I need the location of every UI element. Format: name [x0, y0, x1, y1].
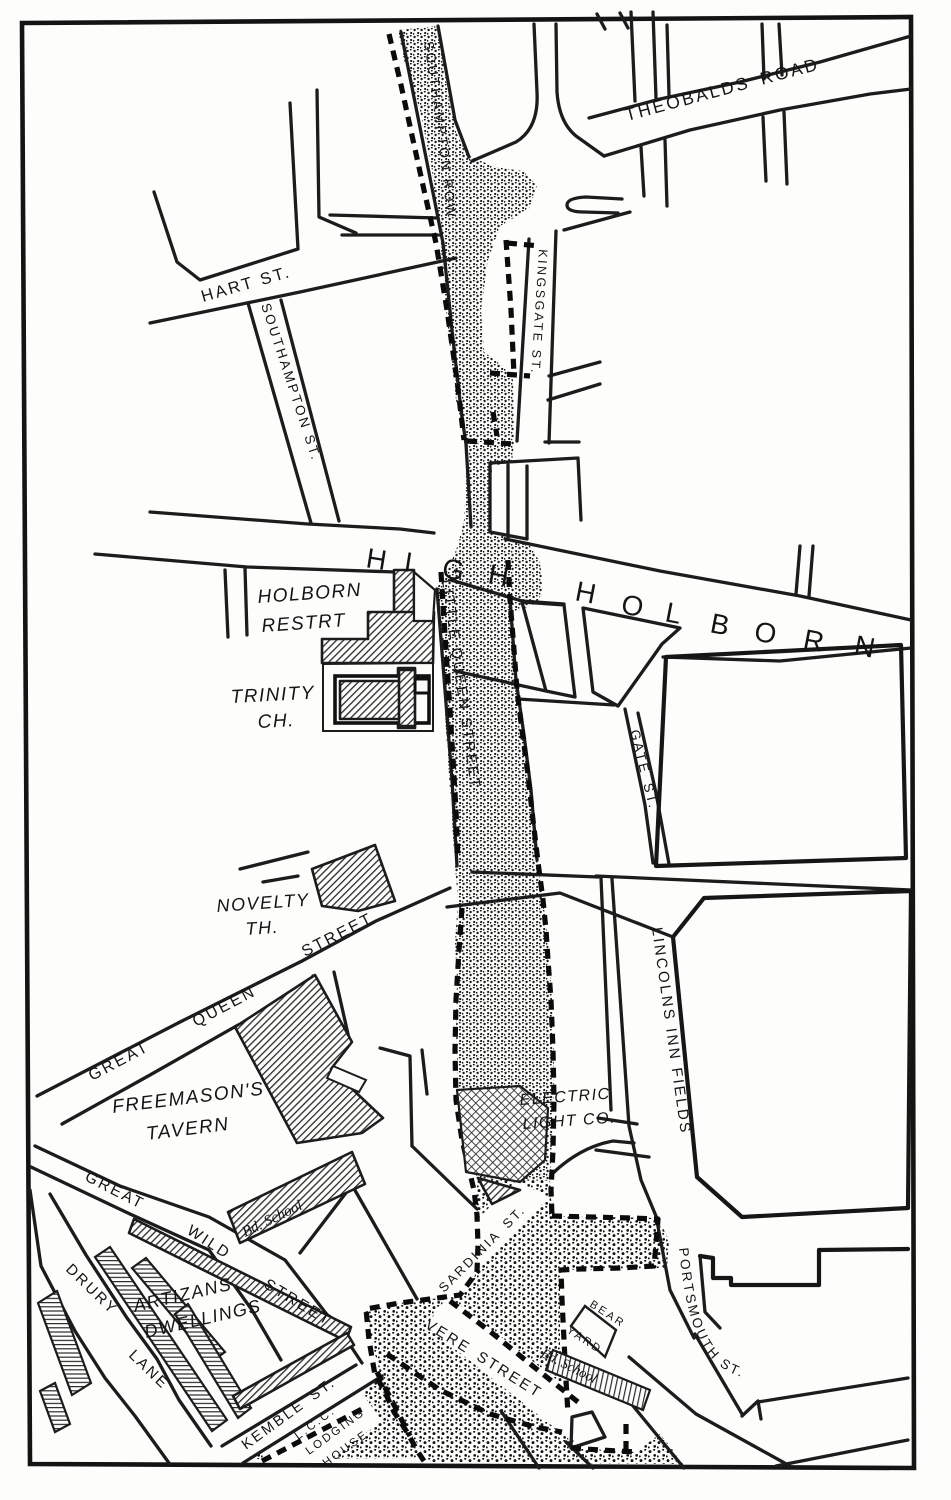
svg-text:CH.: CH.	[257, 710, 295, 733]
svg-text:TH.: TH.	[245, 917, 280, 939]
svg-text:TRINITY: TRINITY	[230, 683, 315, 708]
